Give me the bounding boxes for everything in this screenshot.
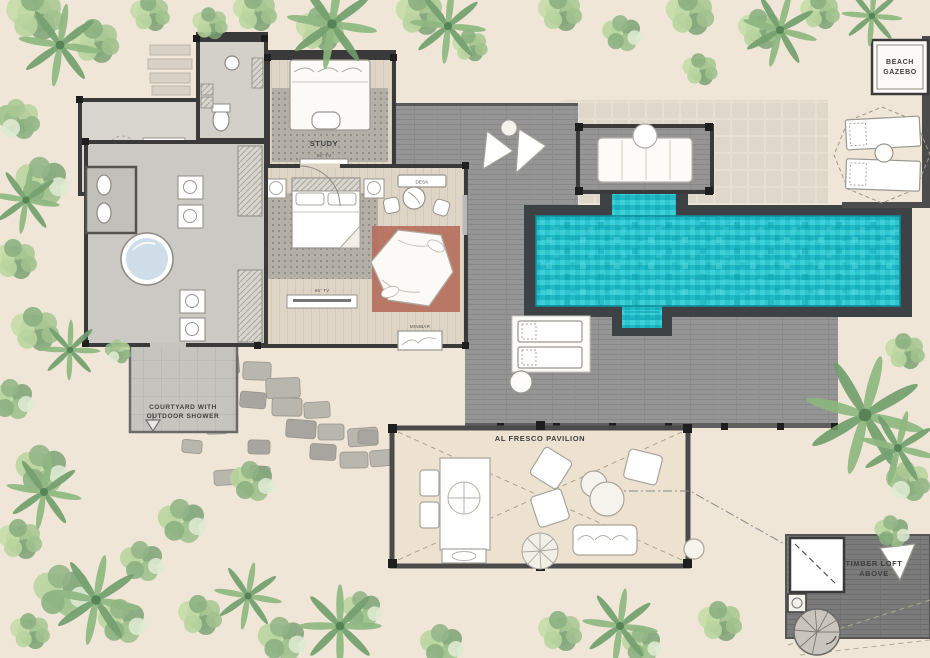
pavilion-label: AL FRESCO PAVILION xyxy=(495,434,585,443)
paver-stone xyxy=(358,430,378,445)
minibar-label: MINIBAR xyxy=(410,324,431,329)
loft-label: ABOVE xyxy=(859,569,889,578)
bolster-pillow-icon xyxy=(633,124,657,148)
paver-stone xyxy=(243,362,272,381)
desk-label: DESK xyxy=(415,180,428,185)
paver-stone xyxy=(285,419,316,439)
study-tv-label: 55" TV xyxy=(317,153,332,158)
bed xyxy=(292,178,360,248)
paver-stone xyxy=(272,398,302,417)
paver-stone xyxy=(340,452,368,468)
minibar xyxy=(398,331,442,350)
pedestal-sink-icon xyxy=(225,56,239,70)
master-bedroom xyxy=(258,166,466,350)
dining-chair-icon xyxy=(420,470,439,496)
paver-stone xyxy=(304,401,331,418)
paver-stone xyxy=(318,424,344,440)
nightstand xyxy=(364,179,384,198)
bathtub-icon xyxy=(121,233,173,285)
round-table-icon xyxy=(590,482,624,516)
paver-stone xyxy=(266,377,301,398)
guest-wc xyxy=(198,40,266,140)
planter-jar-icon xyxy=(684,539,704,559)
pool-daybed-platform xyxy=(575,123,713,195)
lounge-platform xyxy=(371,226,460,312)
loft-label: TIMBER LOFT xyxy=(845,559,902,568)
sofa xyxy=(573,525,637,555)
floor-plan-canvas: BEACH GAZEBO STUDY 55" TV DESK 65" TV MI… xyxy=(0,0,930,658)
paver-stone xyxy=(181,439,202,454)
gazebo-label: BEACH xyxy=(886,59,914,66)
loft-fan-unit xyxy=(788,594,806,612)
courtyard-label: COURTYARD WITH xyxy=(149,404,217,411)
courtyard-label: OUTDOOR SHOWER xyxy=(147,413,220,420)
study-room xyxy=(268,58,394,166)
bedroom-tv-label: 65" TV xyxy=(315,288,330,293)
pouf-icon xyxy=(383,196,401,214)
desk-chair-icon xyxy=(403,187,425,209)
fan-icon xyxy=(522,533,558,569)
spiral-staircase-icon xyxy=(794,609,840,655)
floor-plan-drawing: BEACH GAZEBO STUDY 55" TV DESK 65" TV MI… xyxy=(0,0,930,658)
beach-gazebo-sign xyxy=(872,40,928,94)
wardrobe xyxy=(238,270,262,342)
nightstand xyxy=(266,179,286,198)
dining-chair-icon xyxy=(420,502,439,528)
paver-stone xyxy=(310,443,337,460)
wardrobe xyxy=(238,146,262,216)
side-table-icon xyxy=(510,371,532,393)
paver-stone xyxy=(248,440,270,454)
bathroom xyxy=(86,142,266,345)
bidet-icon xyxy=(97,203,111,223)
paver-stone xyxy=(239,391,266,409)
toilet-icon xyxy=(97,175,111,195)
coffee-table xyxy=(312,112,340,129)
timber-loft xyxy=(786,535,930,655)
bedroom-tv-console xyxy=(287,295,357,308)
study-label: STUDY xyxy=(310,139,338,148)
gazebo-label: GAZEBO xyxy=(883,69,917,76)
